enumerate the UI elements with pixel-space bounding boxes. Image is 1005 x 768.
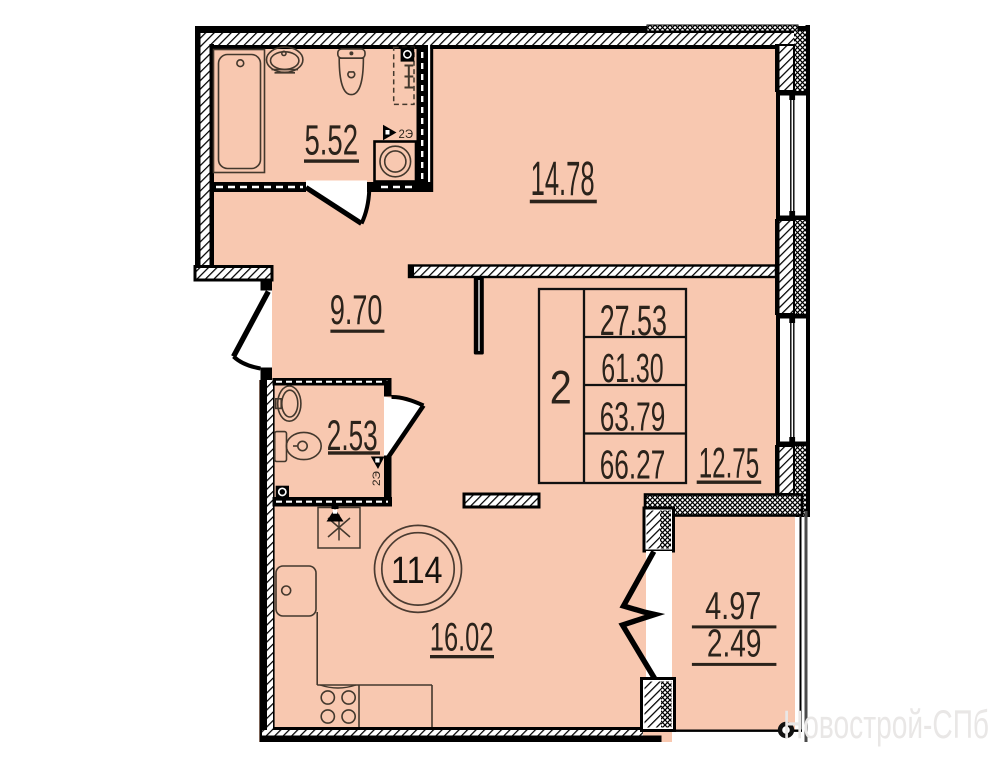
svg-text:2Э: 2Э	[371, 471, 383, 486]
svg-text:9.70: 9.70	[330, 286, 383, 333]
svg-text:63.79: 63.79	[600, 393, 666, 439]
svg-text:5.52: 5.52	[305, 118, 359, 165]
svg-text:4.97: 4.97	[705, 585, 761, 628]
svg-text:14.78: 14.78	[531, 153, 595, 206]
svg-text:2.49: 2.49	[707, 622, 762, 665]
svg-text:16.02: 16.02	[430, 615, 494, 659]
svg-text:114: 114	[391, 550, 443, 592]
svg-text:2Э: 2Э	[399, 129, 414, 141]
svg-text:66.27: 66.27	[600, 442, 666, 488]
svg-text:12.75: 12.75	[699, 440, 760, 488]
svg-text:2: 2	[550, 361, 572, 414]
svg-text:Новострой-СПб: Новострой-СПб	[783, 703, 989, 747]
svg-text:27.53: 27.53	[600, 297, 667, 345]
svg-text:61.30: 61.30	[601, 345, 664, 391]
